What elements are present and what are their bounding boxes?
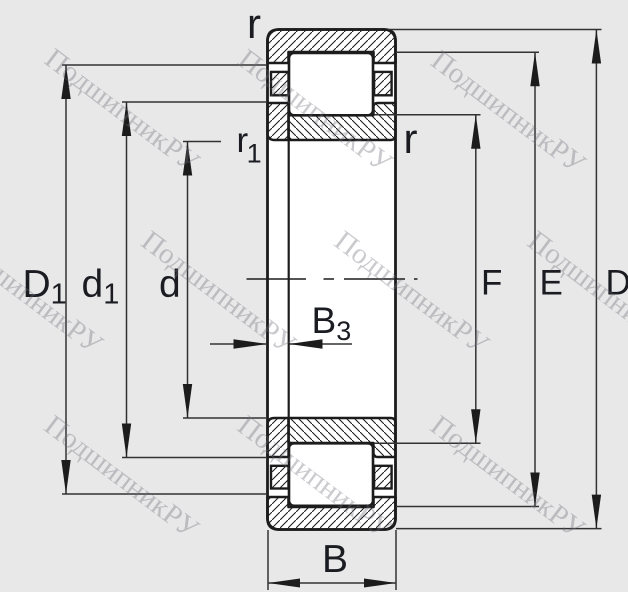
svg-text:F: F	[481, 264, 502, 303]
svg-text:r: r	[404, 115, 418, 162]
svg-text:B: B	[322, 538, 348, 581]
svg-text:r: r	[247, 0, 261, 47]
